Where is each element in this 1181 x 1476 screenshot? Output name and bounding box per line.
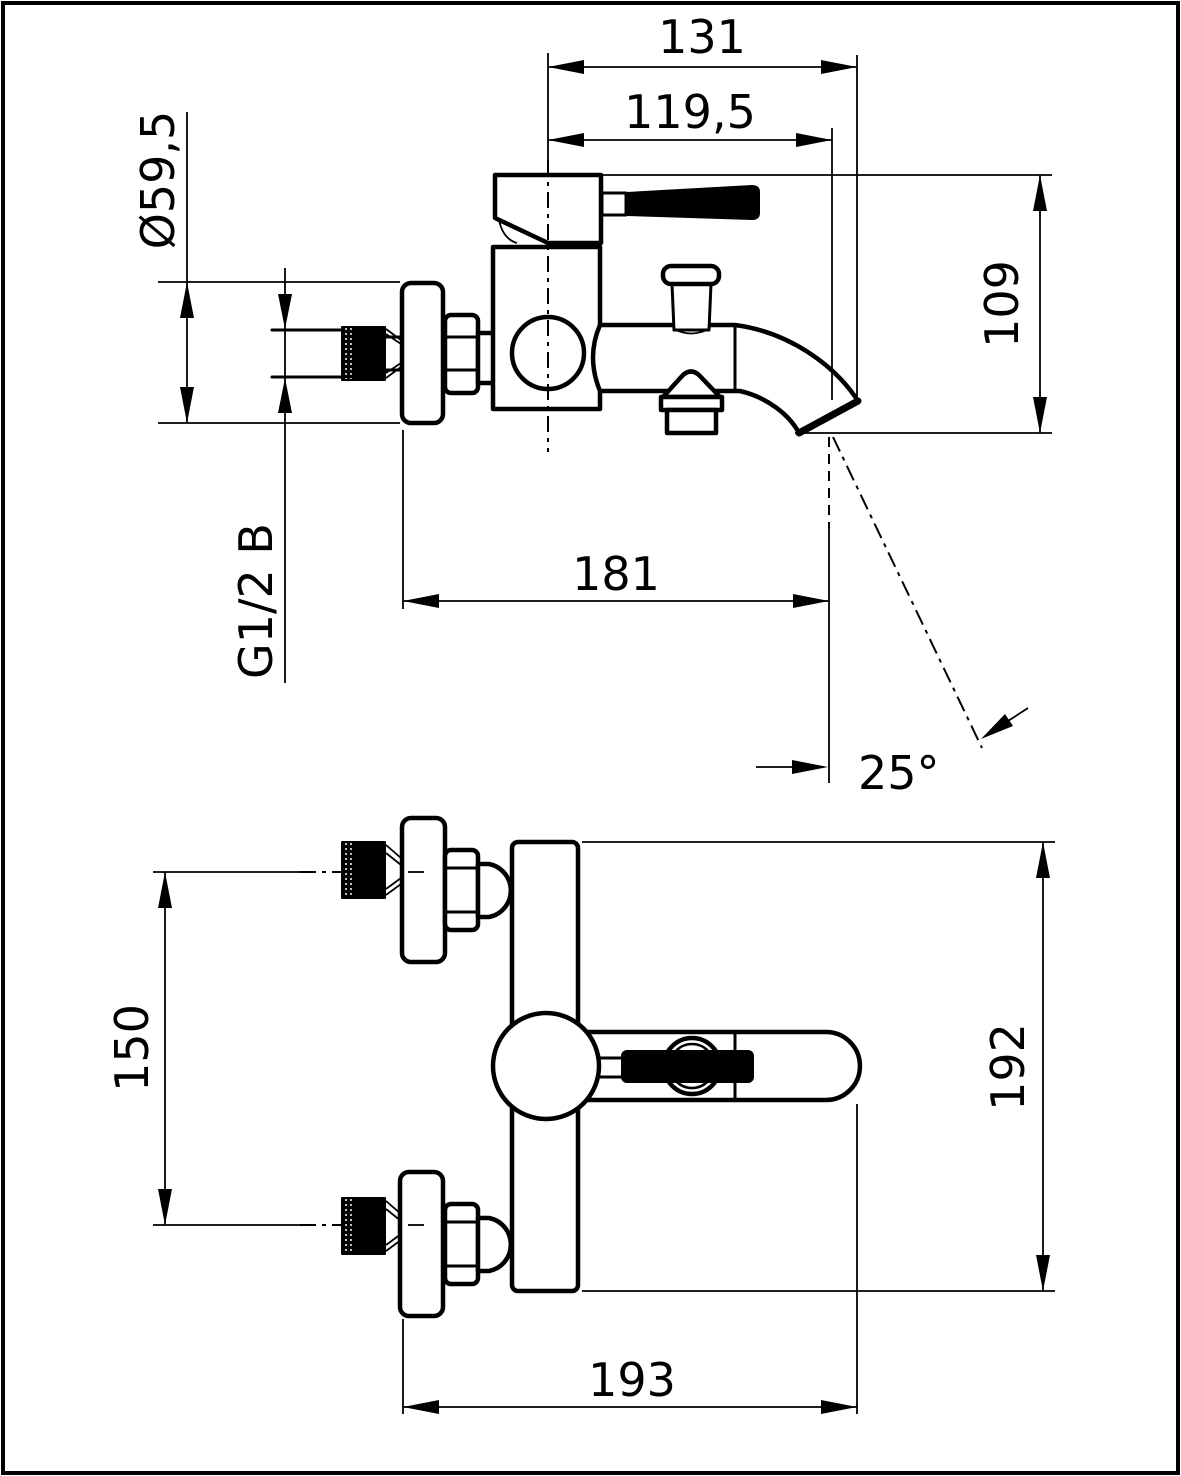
dim-overall-height-label: 192 [981, 1023, 1035, 1111]
dim-escutcheon-diameter-label: Ø59,5 [131, 111, 185, 250]
spout-side [593, 325, 858, 433]
dim-inlet-spacing: 150 [105, 872, 308, 1225]
mixer-cartridge-circle-front [493, 1013, 599, 1119]
side-view [272, 160, 858, 452]
wall-escutcheon-side [402, 283, 443, 423]
technical-drawing-canvas: 131 119,5 Ø59,5 G1/2 B [0, 0, 1181, 1476]
lever-handle-side [627, 186, 759, 219]
dim-inlet-spacing-label: 150 [105, 1004, 159, 1092]
dim-wall-to-outlet-depth-label: 181 [572, 547, 660, 601]
dim-outlet-center-depth-label: 119,5 [624, 85, 756, 139]
inlet-connector-bottom [300, 1172, 511, 1316]
wall-pipe-stub [272, 330, 342, 377]
hex-nut-side [445, 315, 478, 393]
dim-overall-depth-label: 131 [658, 10, 746, 64]
front-view [300, 818, 860, 1316]
thread-connector [342, 327, 402, 380]
dim-wall-to-outlet-depth: 181 [403, 430, 829, 609]
lever-stem-front [598, 1058, 624, 1077]
dim-spout-angle: 25° [756, 437, 1028, 800]
inlet-connector-top [300, 818, 511, 962]
lever-handle-front [622, 1051, 753, 1082]
dim-connection-thread-label: G1/2 B [229, 523, 283, 679]
lever-stem-side [602, 193, 626, 215]
dim-spout-angle-label: 25° [858, 746, 940, 800]
dim-body-to-outlet-height-label: 109 [975, 260, 1029, 348]
dim-overall-width-label: 193 [588, 1353, 676, 1407]
